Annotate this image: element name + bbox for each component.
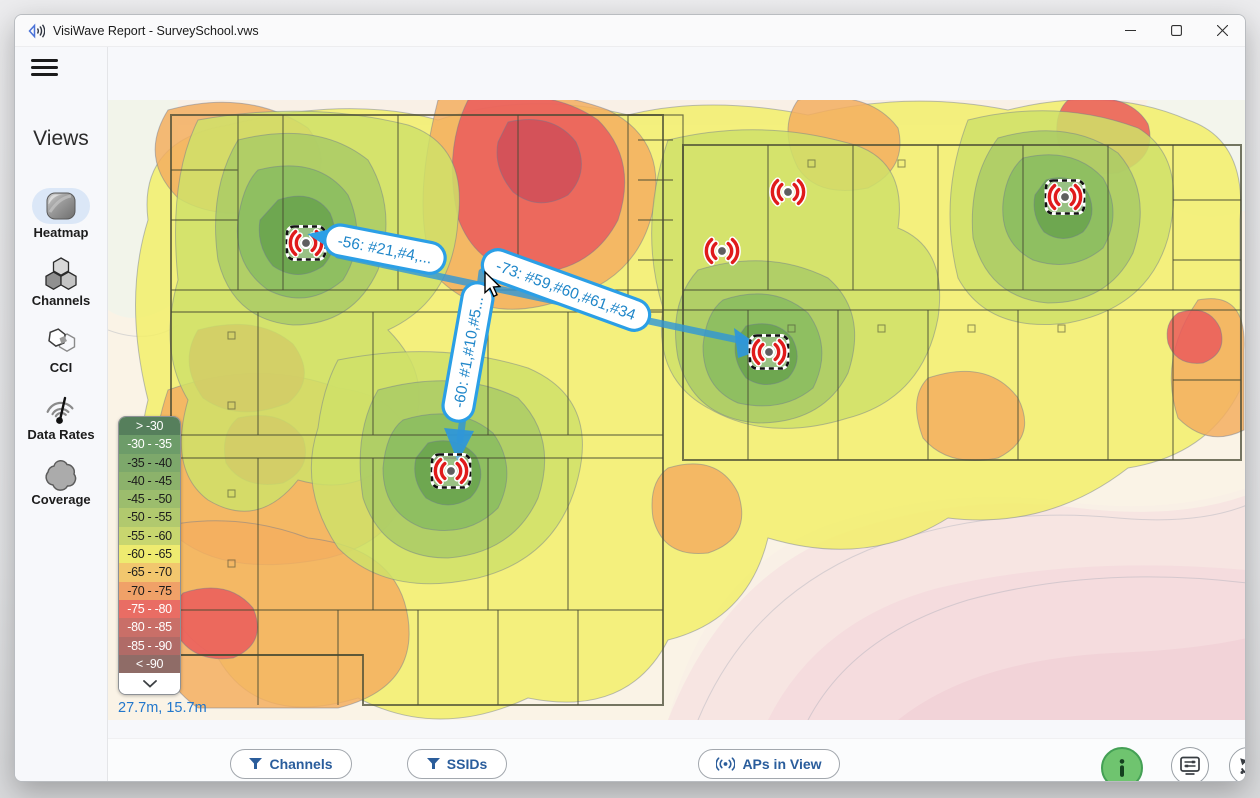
chevron-down-icon [143,680,157,688]
channels-filter-button[interactable]: Channels [230,749,352,779]
sidebar-label-data-rates: Data Rates [15,427,107,442]
ssids-filter-label: SSIDs [447,756,487,772]
legend-expand-button[interactable] [119,673,180,694]
aps-in-view-button[interactable]: APs in View [698,749,840,779]
legend-row: -65 - -70 [119,563,180,581]
ap-marker-6-selected[interactable] [1046,181,1084,214]
cci-icon [40,324,82,362]
legend-row: -30 - -35 [119,435,180,453]
ssids-filter-button[interactable]: SSIDs [407,749,507,779]
legend-row: > -30 [119,417,180,435]
filter-icon [427,758,440,770]
heatmap-canvas[interactable]: -56: #21,#4,... -73: #59,#60,#61,#34 -60… [108,100,1246,720]
wifi-probe-button[interactable] [1101,747,1143,782]
ap-marker-5-selected[interactable] [432,455,470,488]
legend-row: -70 - -75 [119,582,180,600]
data-rates-icon [40,391,82,429]
cursor-coordinates: 27.7m, 15.7m [118,700,207,716]
heatmap-icon [45,192,77,220]
legend-row: -80 - -85 [119,618,180,636]
legend-row: < -90 [119,655,180,673]
sidebar-label-cci: CCI [15,360,107,375]
aps-in-view-label: APs in View [742,756,821,772]
signal-legend: > -30-30 - -35-35 - -40-40 - -45-45 - -5… [118,416,181,695]
sidebar-label-channels: Channels [15,293,107,308]
main-area: ? [108,47,1245,781]
app-logo-icon [27,23,45,39]
channels-filter-label: Channels [269,756,332,772]
app-window: VisiWave Report - SurveySchool.vws Views [14,14,1246,782]
window-title: VisiWave Report - SurveySchool.vws [53,24,259,38]
sidebar: Views Heatmap Ch [15,47,108,781]
display-settings-icon [1179,756,1201,776]
undo-button[interactable] [1229,747,1246,782]
sidebar-item-heatmap[interactable] [32,188,90,224]
ap-marker-1-selected[interactable] [287,227,325,260]
info-icon [1112,757,1132,779]
titlebar: VisiWave Report - SurveySchool.vws [15,15,1245,47]
legend-row: -60 - -65 [119,545,180,563]
menu-icon[interactable] [31,59,58,76]
sidebar-label-coverage: Coverage [15,492,107,507]
filter-icon [249,758,262,770]
maximize-icon [1171,25,1182,36]
legend-rows: > -30-30 - -35-35 - -40-40 - -45-45 - -5… [119,417,180,673]
antenna-icon [716,757,735,771]
legend-row: -40 - -45 [119,472,180,490]
close-icon [1217,25,1228,36]
legend-row: -35 - -40 [119,454,180,472]
legend-row: -50 - -55 [119,508,180,526]
minimize-icon [1125,25,1136,36]
selected-pill [32,188,90,224]
heatmap-rendering: -56: #21,#4,... -73: #59,#60,#61,#34 -60… [108,100,1246,720]
legend-row: -75 - -80 [119,600,180,618]
sidebar-item-channels[interactable] [41,255,81,298]
legend-row: -45 - -50 [119,490,180,508]
views-title: Views [15,127,107,151]
maximize-button[interactable] [1153,15,1199,47]
ap-marker-4-selected[interactable] [750,336,788,369]
sidebar-label-heatmap: Heatmap [15,225,107,240]
undo-arrow-icon [1238,756,1246,776]
minimize-button[interactable] [1107,15,1153,47]
legend-row: -55 - -60 [119,527,180,545]
legend-row: -85 - -90 [119,637,180,655]
coverage-icon [40,458,82,494]
channels-icon [41,255,81,293]
bottom-toolbar: Channels 2.4GHz,5GHz,6GHz SSIDs All [108,738,1245,782]
options-button[interactable] [1171,747,1209,782]
close-button[interactable] [1199,15,1245,47]
